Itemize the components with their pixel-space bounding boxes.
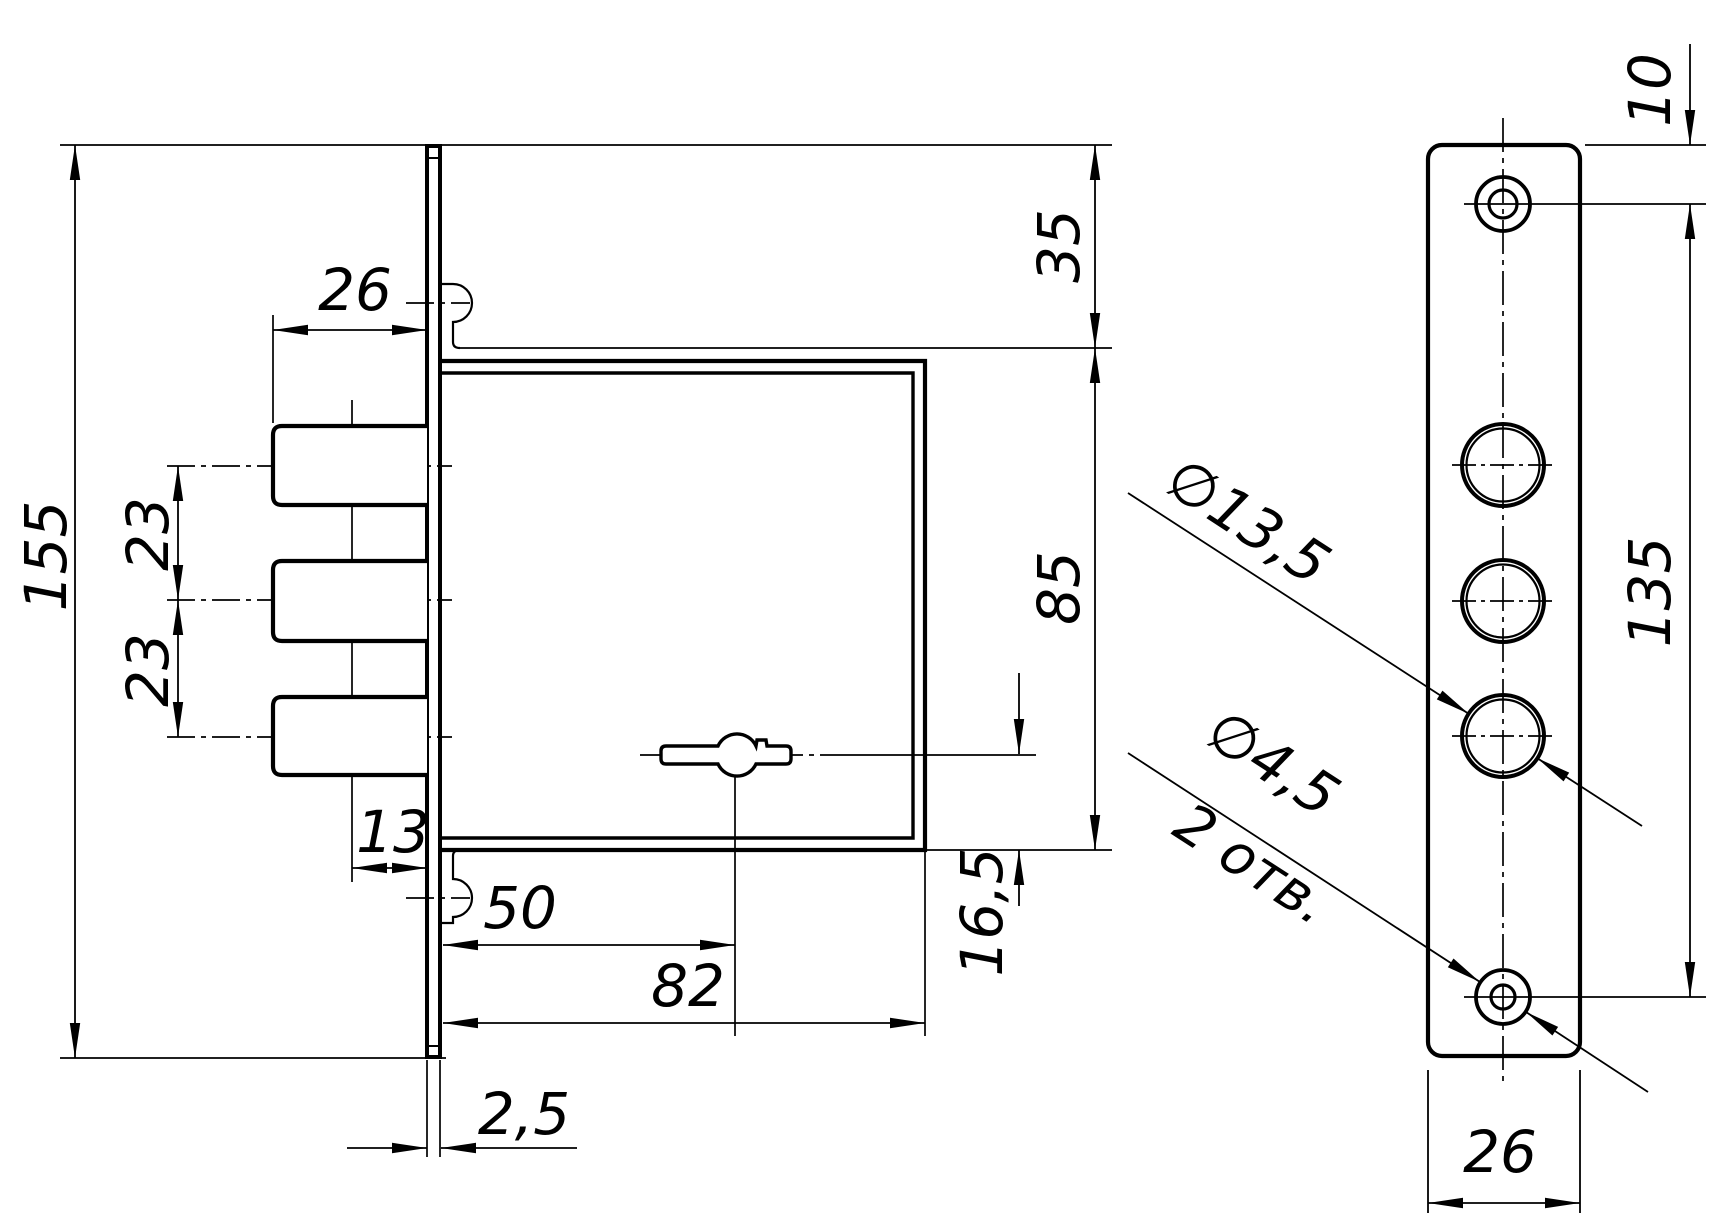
dim-13-label: 13	[356, 798, 430, 866]
bolt-2	[273, 561, 427, 641]
lock-case	[440, 284, 925, 923]
dim-23-lower: 23	[114, 600, 182, 737]
bolts	[273, 426, 427, 775]
dim-10-label: 10	[1616, 53, 1684, 127]
side-centerlines	[167, 303, 830, 898]
side-view	[60, 145, 1112, 1157]
case-outer	[441, 361, 925, 850]
dim-13: 13	[352, 798, 430, 868]
top-screw-boss	[440, 284, 472, 348]
dim-50: 50	[443, 874, 735, 945]
dim-16-5-label: 16,5	[948, 847, 1016, 976]
keyhole	[661, 734, 791, 776]
dim-50-label: 50	[483, 874, 557, 942]
dim-10: 10	[1616, 44, 1690, 145]
bottom-screw-boss	[440, 850, 472, 923]
bolt-3	[273, 697, 427, 775]
dim-26-plate-label: 26	[1463, 1118, 1537, 1186]
faceplate-side	[425, 146, 442, 1057]
dim-85-label: 85	[1025, 551, 1093, 625]
dim-135-label: 135	[1616, 537, 1684, 648]
dim-35: 35	[1025, 145, 1095, 348]
bolt-hole-diameter-label: ∅13,5	[1154, 444, 1342, 599]
dim-155-label: 155	[12, 501, 80, 612]
dim-85: 85	[1025, 348, 1095, 850]
side-extension-lines	[60, 145, 1112, 1157]
dim-155: 155	[12, 145, 80, 1058]
drawing-sheet: 155 26 23 23 13 50 82 2,5	[0, 0, 1720, 1217]
side-view-dimensions: 155 26 23 23 13 50 82 2,5	[12, 145, 1095, 1148]
dim-23-lower-label: 23	[114, 633, 182, 707]
dim-26-bolt-label: 26	[318, 256, 392, 324]
dim-82: 82	[443, 952, 925, 1023]
bolt-1	[273, 426, 427, 505]
drawing-canvas: 155 26 23 23 13 50 82 2,5	[0, 0, 1720, 1217]
dim-26-bolt: 26	[273, 256, 427, 330]
leader-screw-hole-diameter: ∅4,5 2 отв.	[1128, 696, 1648, 1092]
front-view-dimensions: 10 135 26 ∅13,5 ∅4,5 2 отв.	[1128, 44, 1690, 1213]
dim-135: 135	[1616, 204, 1690, 997]
dim-82-label: 82	[651, 952, 725, 1020]
dim-2-5-label: 2,5	[478, 1080, 570, 1148]
dim-2-5: 2,5	[347, 1080, 577, 1148]
dim-23-upper: 23	[114, 466, 182, 600]
leader-bolt-hole-diameter: ∅13,5	[1128, 444, 1642, 826]
case-inner	[441, 373, 913, 838]
dim-23-upper-label: 23	[114, 497, 182, 571]
dim-35-label: 35	[1025, 209, 1093, 283]
dim-26-plate: 26	[1428, 1070, 1580, 1213]
dim-16-5: 16,5	[948, 673, 1019, 977]
